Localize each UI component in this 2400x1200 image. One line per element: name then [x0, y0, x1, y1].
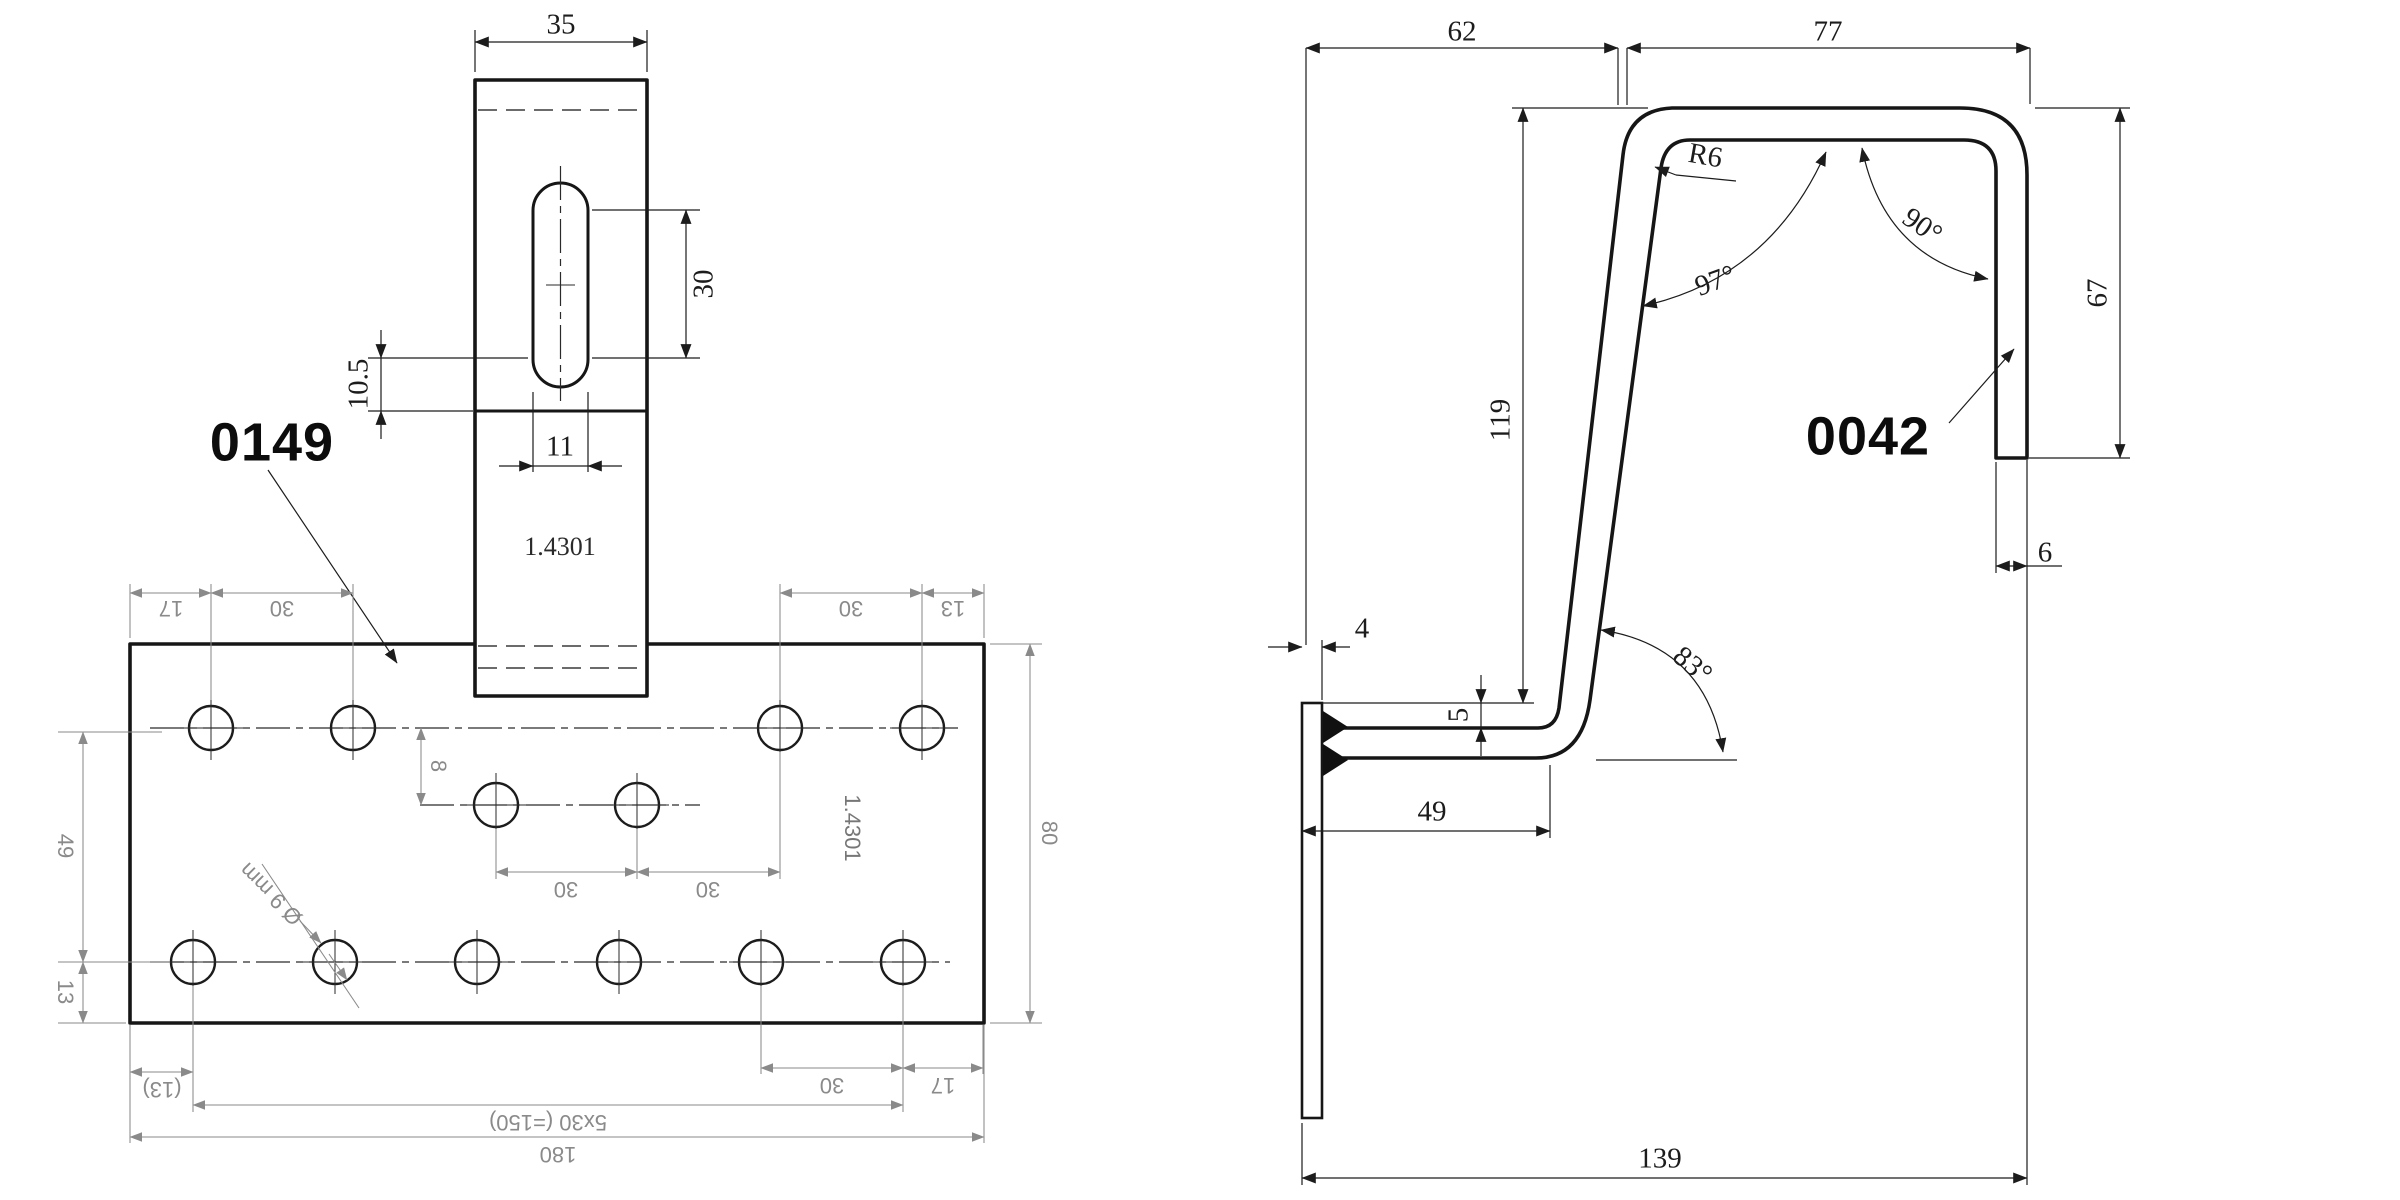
dim-top-pitch-left: 30 [270, 596, 294, 621]
dim-slot-offset: 10.5 [343, 359, 375, 410]
dim-row-spacing: 49 [53, 834, 78, 858]
dim-leg-width: 6 [2038, 537, 2053, 569]
dim-bottom-margin-left: (13) [142, 1077, 181, 1102]
dim-total-width: 180 [540, 1142, 577, 1167]
weld-fillet-top [1323, 711, 1348, 743]
dim-plate-height: 80 [1037, 821, 1062, 845]
bend-radius-label: R6 [1686, 137, 1725, 174]
angle-top-left-label: 97° [1691, 259, 1740, 303]
tab-material-label: 1.4301 [524, 532, 596, 561]
angle-bottom-label: 83° [1667, 640, 1719, 691]
leader-0042 [1949, 349, 2014, 423]
dim-bottom-edge: 13 [53, 980, 78, 1004]
dim-slot-length: 30 [688, 270, 720, 299]
dim-bottom-pitch: 30 [820, 1073, 844, 1098]
hole-callout-text: Ø 9 mm [234, 858, 307, 931]
dim-strip-width: 4 [1355, 613, 1370, 645]
tab-dimensions: 35 30 10.5 11 1.4301 [343, 9, 720, 561]
dim-top-margin-right: 13 [941, 596, 965, 621]
dim-mid-pitch-1: 30 [554, 877, 578, 902]
dim-leg-height: 67 [2082, 279, 2114, 308]
hook-dimensions: 62 77 119 5 4 49 139 [1268, 16, 2130, 1185]
dim-bottom-margin-right: 17 [931, 1073, 955, 1098]
dim-total-width: 139 [1638, 1143, 1682, 1175]
part-0042-view: 62 77 119 5 4 49 139 [1268, 16, 2130, 1185]
holes [161, 696, 954, 994]
part-0149-view: 35 30 10.5 11 1.4301 0149 [53, 9, 1062, 1168]
angle-top-right-label: 90° [1897, 201, 1949, 251]
dim-row-offset: 8 [426, 760, 451, 772]
dim-top-margin-left: 17 [159, 596, 183, 621]
dim-span-left: 62 [1448, 16, 1477, 48]
part-number-0149: 0149 [210, 412, 334, 472]
plate-dimensions: 17 30 30 13 8 30 30 30 17 (13) 5x30 (= [53, 584, 1062, 1167]
dim-arm-length: 49 [1418, 796, 1447, 828]
part-number-0042: 0042 [1806, 406, 1930, 466]
leader-0149 [268, 470, 397, 663]
dim-top-pitch-right: 30 [839, 596, 863, 621]
hole-crosshairs [161, 696, 954, 994]
weld-fillet-bottom [1323, 744, 1348, 776]
plate-material-label: 1.4301 [840, 794, 865, 861]
dim-slot-width: 11 [546, 431, 574, 463]
dim-span-right: 77 [1814, 16, 1843, 48]
dim-height: 119 [1485, 399, 1517, 441]
dim-mid-pitch-2: 30 [696, 877, 720, 902]
strip-outline [1302, 703, 1322, 1118]
dim-hole-span: 5x30 (=150) [489, 1110, 607, 1135]
technical-drawing-sheet: 35 30 10.5 11 1.4301 0149 [0, 0, 2400, 1200]
dim-arm-offset: 5 [1443, 708, 1475, 723]
dim-tab-width: 35 [547, 9, 576, 41]
